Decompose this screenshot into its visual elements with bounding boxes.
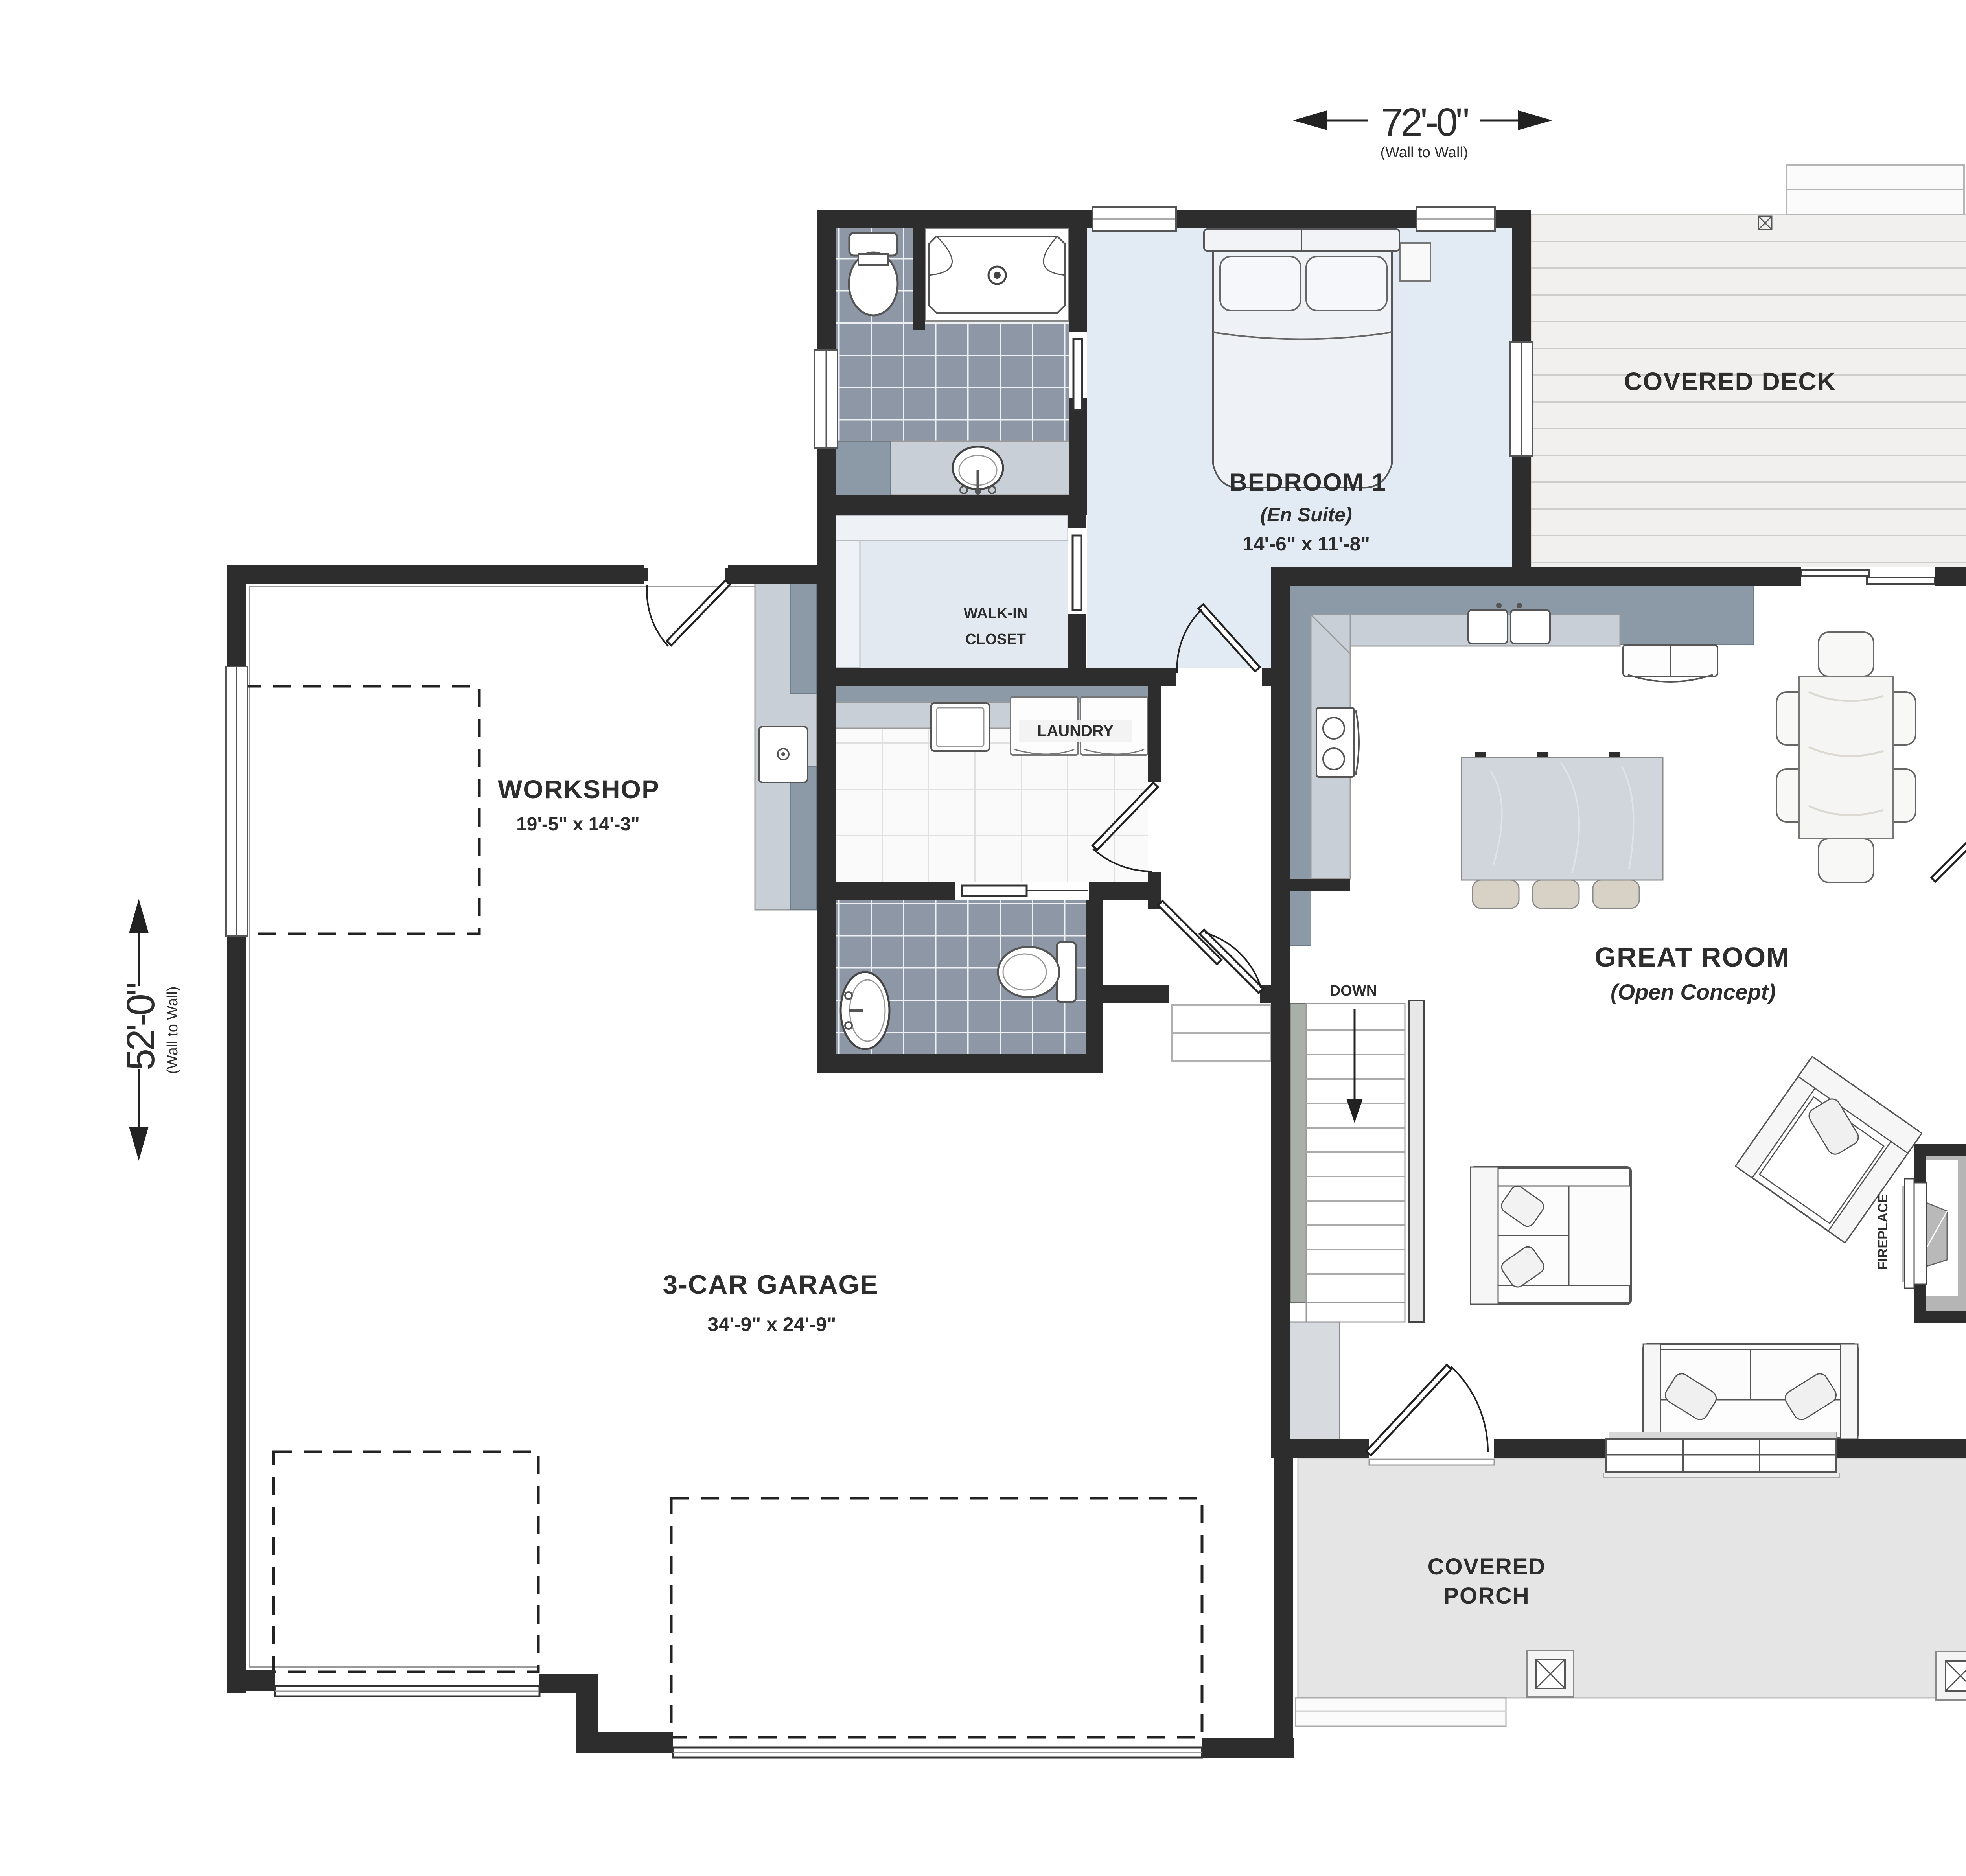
svg-text:COVERED: COVERED (1428, 1554, 1546, 1580)
svg-text:72'-0": 72'-0" (1381, 100, 1468, 144)
svg-text:DOWN: DOWN (1330, 983, 1377, 999)
svg-text:PORCH: PORCH (1443, 1583, 1530, 1609)
svg-text:BEDROOM 1: BEDROOM 1 (1229, 469, 1386, 496)
svg-text:52'-0": 52'-0" (119, 983, 163, 1070)
svg-text:CLOSET: CLOSET (965, 631, 1026, 648)
svg-text:(En Suite): (En Suite) (1260, 504, 1352, 526)
svg-text:LAUNDRY: LAUNDRY (1037, 722, 1114, 740)
svg-text:19'-5" x 14'-3": 19'-5" x 14'-3" (516, 814, 640, 835)
svg-text:14'-6" x 11'-8": 14'-6" x 11'-8" (1243, 533, 1370, 555)
svg-text:GREAT ROOM: GREAT ROOM (1594, 942, 1790, 972)
svg-text:3-CAR GARAGE: 3-CAR GARAGE (663, 1270, 878, 1300)
svg-text:34'-9" x 24'-9": 34'-9" x 24'-9" (708, 1313, 836, 1335)
svg-text:COVERED DECK: COVERED DECK (1624, 367, 1836, 396)
svg-text:WORKSHOP: WORKSHOP (498, 775, 660, 804)
svg-text:(Wall to Wall): (Wall to Wall) (1380, 144, 1468, 161)
svg-text:(Wall to Wall): (Wall to Wall) (164, 986, 181, 1074)
svg-text:WALK-IN: WALK-IN (964, 605, 1028, 622)
svg-text:FIREPLACE: FIREPLACE (1876, 1194, 1891, 1270)
svg-text:(Open Concept): (Open Concept) (1611, 979, 1776, 1004)
